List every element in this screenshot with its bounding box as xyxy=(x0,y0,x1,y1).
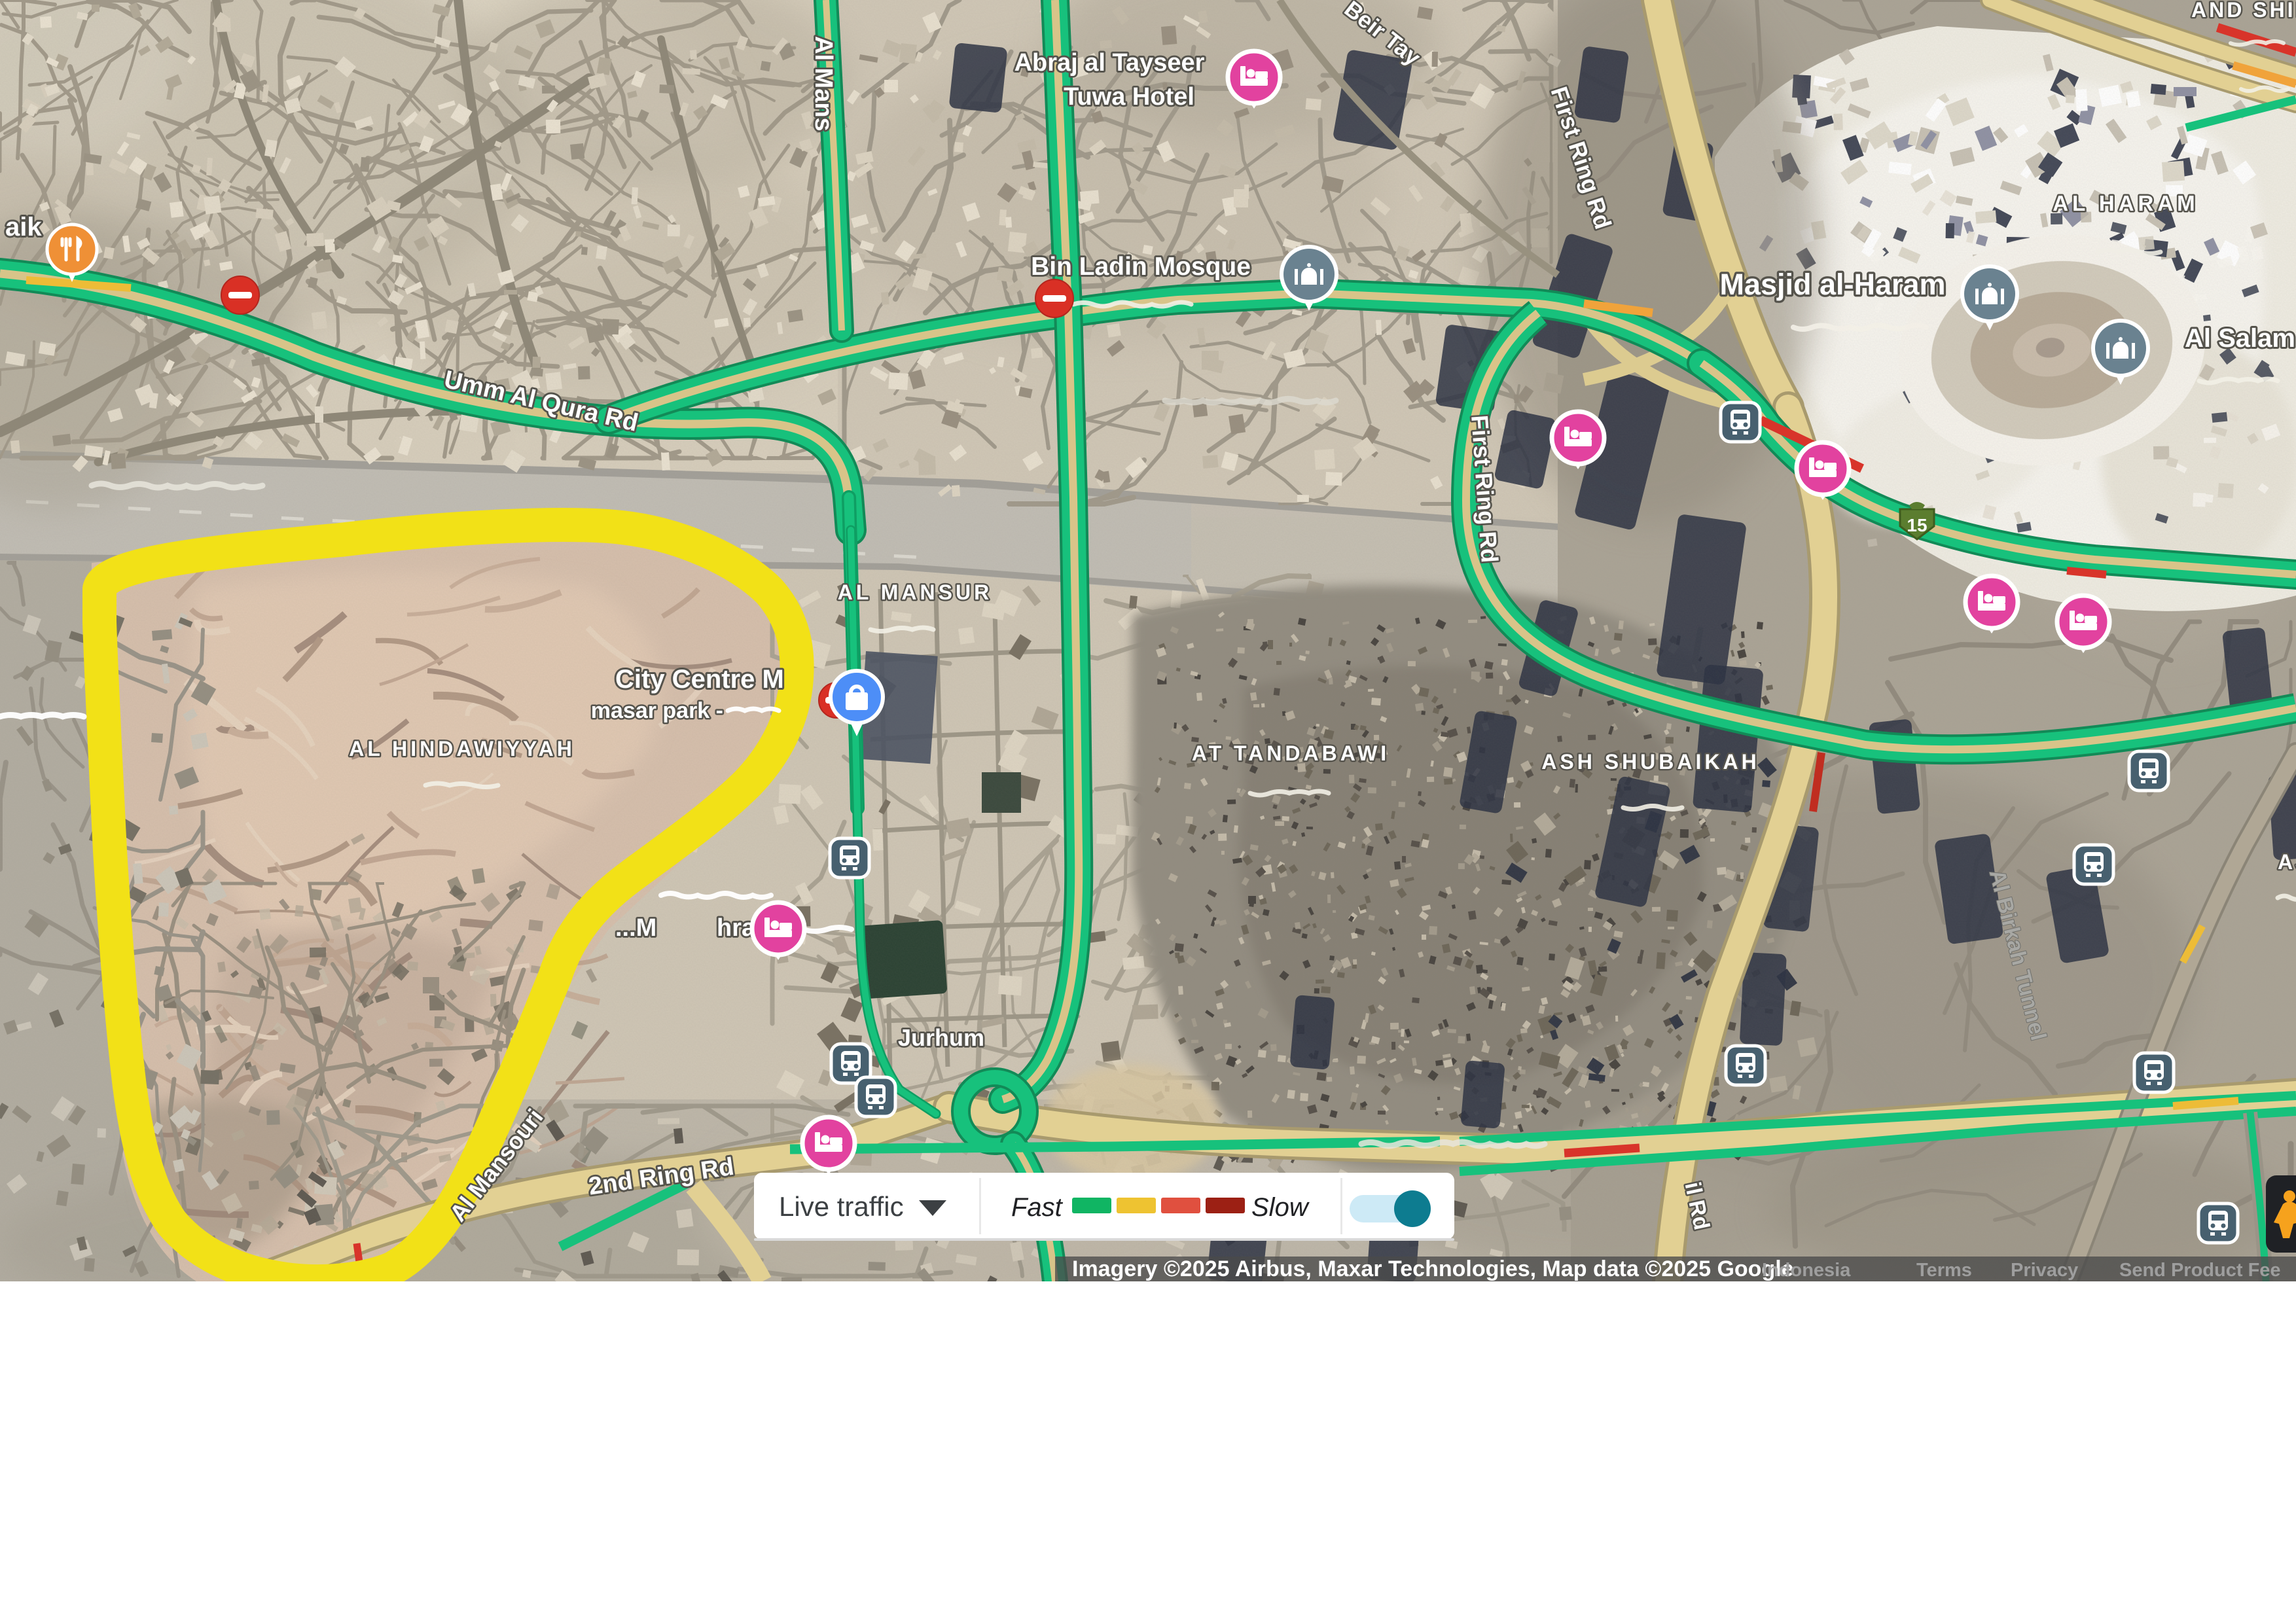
svg-text:AJY: AJY xyxy=(2278,850,2296,874)
svg-text:AL MANSUR: AL MANSUR xyxy=(838,580,992,604)
svg-text:AL HARAM: AL HARAM xyxy=(2053,191,2198,215)
svg-text:AT TANDABAWI: AT TANDABAWI xyxy=(1192,741,1390,765)
svg-text:Al Salam: Al Salam xyxy=(2185,324,2295,353)
svg-text:masar park -: masar park - xyxy=(591,698,723,723)
svg-text:aik: aik xyxy=(5,213,42,241)
svg-text:Masjid al-Haram: Masjid al-Haram xyxy=(1719,268,1945,301)
svg-text:Imagery ©2025 Airbus, Maxar Te: Imagery ©2025 Airbus, Maxar Technologies… xyxy=(1072,1257,1794,1281)
svg-text:...M: ...M xyxy=(615,914,656,942)
svg-text:City Centre M: City Centre M xyxy=(615,665,784,694)
svg-text:Tuwa Hotel: Tuwa Hotel xyxy=(1064,83,1194,111)
svg-text:AND SHIB: AND SHIB xyxy=(2191,0,2296,22)
svg-text:ASH SHUBAIKAH: ASH SHUBAIKAH xyxy=(1541,750,1759,774)
svg-text:Al Mans: Al Mans xyxy=(810,36,837,132)
svg-text:Send Product Fee: Send Product Fee xyxy=(2119,1260,2281,1281)
svg-text:Jurhum: Jurhum xyxy=(898,1024,984,1051)
svg-text:Terms: Terms xyxy=(1916,1260,1972,1281)
svg-text:AL HINDAWIYYAH: AL HINDAWIYYAH xyxy=(349,737,575,760)
svg-text:Fast: Fast xyxy=(1011,1193,1064,1222)
svg-text:Bin Ladin Mosque: Bin Ladin Mosque xyxy=(1031,253,1251,281)
svg-text:15: 15 xyxy=(1907,515,1927,535)
svg-text:Indonesia: Indonesia xyxy=(1762,1260,1851,1281)
svg-text:Live traffic: Live traffic xyxy=(779,1191,904,1222)
svg-text:Privacy: Privacy xyxy=(2011,1260,2078,1281)
svg-text:Slow: Slow xyxy=(1251,1193,1310,1222)
svg-text:Abraj al Tayseer: Abraj al Tayseer xyxy=(1014,49,1205,77)
